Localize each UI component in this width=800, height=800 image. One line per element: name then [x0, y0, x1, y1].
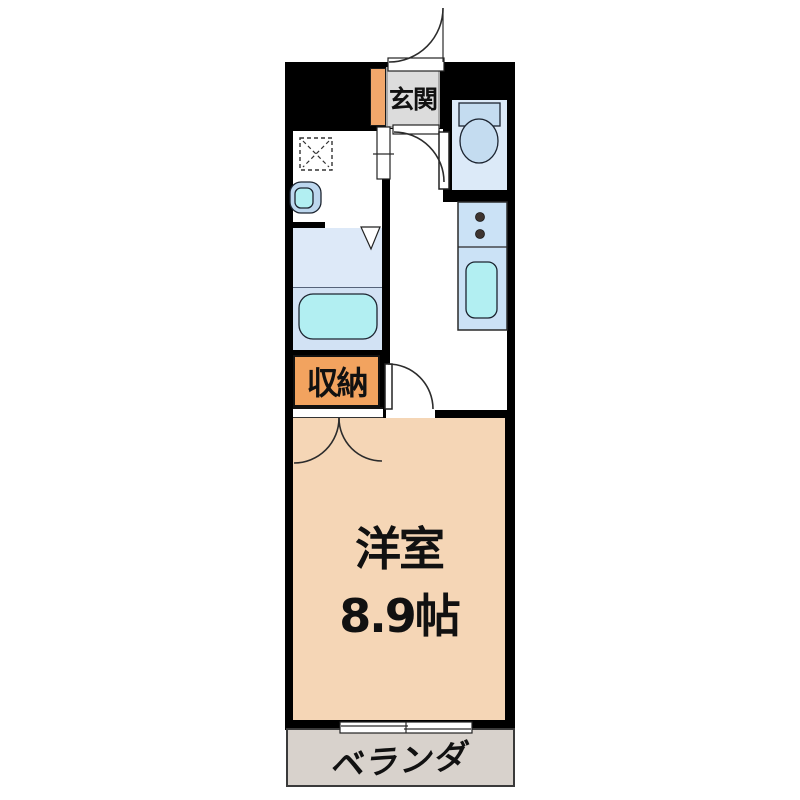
room-veranda: ベランダ [286, 728, 515, 787]
room-genkan: 玄関 [386, 67, 440, 128]
room-door-opening [386, 408, 435, 418]
main-room-size: 8.9帖 [293, 583, 505, 650]
closet-opening [293, 407, 383, 418]
room-toilet [452, 100, 507, 190]
room-storage: 収納 [293, 355, 380, 407]
veranda-label: ベランダ [328, 729, 473, 786]
storage-label: 収納 [306, 358, 366, 404]
genkan-label: 玄関 [389, 80, 437, 116]
kitchen-corridor [443, 202, 507, 410]
floorplan-canvas: 玄関 収納 洋室 8.9帖 ベランダ [0, 0, 800, 800]
corridor [390, 129, 443, 410]
shoe-cabinet [370, 68, 386, 126]
room-washroom [293, 131, 382, 222]
bathroom-tub-area [293, 287, 382, 350]
main-room-label: 洋室 8.9帖 [293, 516, 505, 650]
main-room-name: 洋室 [293, 516, 505, 583]
